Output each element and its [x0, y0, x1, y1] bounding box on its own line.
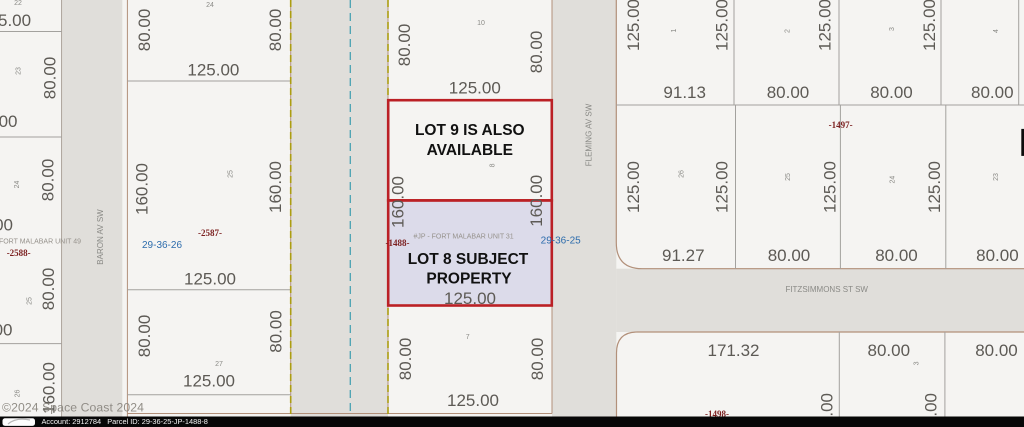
- svg-text:5.00: 5.00: [0, 11, 31, 30]
- svg-text:7: 7: [466, 334, 470, 341]
- svg-text:80.00: 80.00: [135, 9, 154, 52]
- svg-text:125.00: 125.00: [447, 391, 499, 410]
- svg-text:LOT 9 IS ALSO: LOT 9 IS ALSO: [415, 122, 525, 139]
- svg-text:23: 23: [16, 67, 23, 75]
- svg-text:24: 24: [14, 181, 21, 189]
- svg-text:125.00: 125.00: [184, 270, 236, 289]
- svg-text:160.00: 160.00: [527, 175, 546, 227]
- svg-text:125.00: 125.00: [816, 0, 835, 51]
- svg-text:80.00: 80.00: [767, 83, 810, 102]
- svg-text:80.00: 80.00: [971, 83, 1014, 102]
- svg-text:29-36-26: 29-36-26: [142, 240, 182, 251]
- svg-text:00: 00: [0, 216, 13, 235]
- svg-text:91.27: 91.27: [662, 246, 705, 265]
- svg-text:80.00: 80.00: [266, 9, 285, 52]
- svg-text:80.00: 80.00: [135, 315, 154, 358]
- svg-text:80.00: 80.00: [39, 159, 58, 202]
- svg-text:80.00: 80.00: [396, 338, 415, 381]
- svg-text:125.00: 125.00: [444, 289, 496, 308]
- svg-text:125.00: 125.00: [187, 61, 239, 80]
- svg-text:-1488-: -1488-: [386, 238, 410, 248]
- svg-text:80.00: 80.00: [870, 83, 913, 102]
- svg-text:00: 00: [0, 112, 18, 131]
- svg-text:125.00: 125.00: [624, 0, 643, 51]
- svg-text:80.00: 80.00: [41, 57, 60, 100]
- svg-text:8: 8: [489, 163, 496, 167]
- svg-text:125.00: 125.00: [920, 0, 939, 51]
- svg-text:4: 4: [993, 29, 1000, 33]
- svg-text:AVAILABLE: AVAILABLE: [427, 142, 513, 159]
- svg-text:80.00: 80.00: [868, 341, 911, 360]
- svg-text:25: 25: [27, 297, 34, 305]
- svg-text:125.00: 125.00: [821, 161, 840, 213]
- svg-text:160.00: 160.00: [133, 163, 152, 215]
- svg-text:1: 1: [671, 28, 678, 32]
- svg-text:00: 00: [0, 321, 13, 340]
- svg-text:23: 23: [993, 173, 1000, 181]
- svg-text:27: 27: [215, 361, 223, 368]
- svg-text:26: 26: [679, 170, 686, 178]
- svg-text:2: 2: [785, 29, 792, 33]
- svg-text:80.00: 80.00: [527, 31, 546, 74]
- svg-text:10: 10: [477, 20, 485, 27]
- svg-text:25: 25: [785, 173, 792, 181]
- svg-text:FLEMING AV SW: FLEMING AV SW: [585, 103, 594, 166]
- svg-text:125.00: 125.00: [624, 161, 643, 213]
- svg-text:125.00: 125.00: [925, 161, 944, 213]
- svg-text:©2024 Space Coast 2024: ©2024 Space Coast 2024: [2, 401, 144, 415]
- svg-text:BARON AV SW: BARON AV SW: [96, 209, 105, 265]
- svg-text:24: 24: [890, 176, 897, 184]
- svg-text:FITZSIMMONS ST SW: FITZSIMMONS ST SW: [785, 285, 868, 294]
- svg-text:80.00: 80.00: [39, 268, 58, 311]
- svg-text:125.00: 125.00: [183, 372, 235, 391]
- svg-text:160.00: 160.00: [389, 176, 408, 228]
- svg-text:171.32: 171.32: [708, 341, 760, 360]
- svg-text:-2588-: -2588-: [7, 248, 31, 258]
- svg-text:FORT MALABAR UNIT 49: FORT MALABAR UNIT 49: [0, 239, 81, 246]
- svg-text:80.00: 80.00: [875, 246, 918, 265]
- svg-text:#JP - FORT MALABAR UNIT 31: #JP - FORT MALABAR UNIT 31: [413, 234, 513, 241]
- svg-text:3: 3: [913, 361, 920, 365]
- svg-text:91.13: 91.13: [663, 83, 706, 102]
- svg-text:29-36-25: 29-36-25: [541, 236, 581, 247]
- svg-text:80.00: 80.00: [976, 246, 1019, 265]
- svg-text:PROPERTY: PROPERTY: [426, 271, 512, 288]
- svg-text:-2587-: -2587-: [198, 228, 222, 238]
- svg-text:26: 26: [15, 390, 22, 398]
- svg-text:80.00: 80.00: [975, 341, 1018, 360]
- svg-text:3: 3: [889, 27, 896, 31]
- svg-text:25: 25: [228, 170, 235, 178]
- svg-text:24: 24: [206, 2, 214, 9]
- svg-text:125.00: 125.00: [449, 79, 501, 98]
- svg-text:80.00: 80.00: [395, 24, 414, 67]
- svg-text:125.00: 125.00: [713, 0, 732, 51]
- svg-text:125.00: 125.00: [713, 161, 732, 213]
- svg-text:80.00: 80.00: [768, 246, 811, 265]
- svg-text:LOT 8 SUBJECT: LOT 8 SUBJECT: [408, 251, 529, 268]
- svg-text:Account: 2912784 Parcel ID:: Account: 2912784 Parcel ID: 29-36-25-JP-…: [42, 417, 208, 426]
- svg-text:80.00: 80.00: [267, 310, 286, 353]
- svg-text:160.00: 160.00: [266, 161, 285, 213]
- svg-text:22: 22: [14, 0, 22, 7]
- svg-text:80.00: 80.00: [528, 338, 547, 381]
- svg-text:-1497-: -1497-: [829, 120, 853, 130]
